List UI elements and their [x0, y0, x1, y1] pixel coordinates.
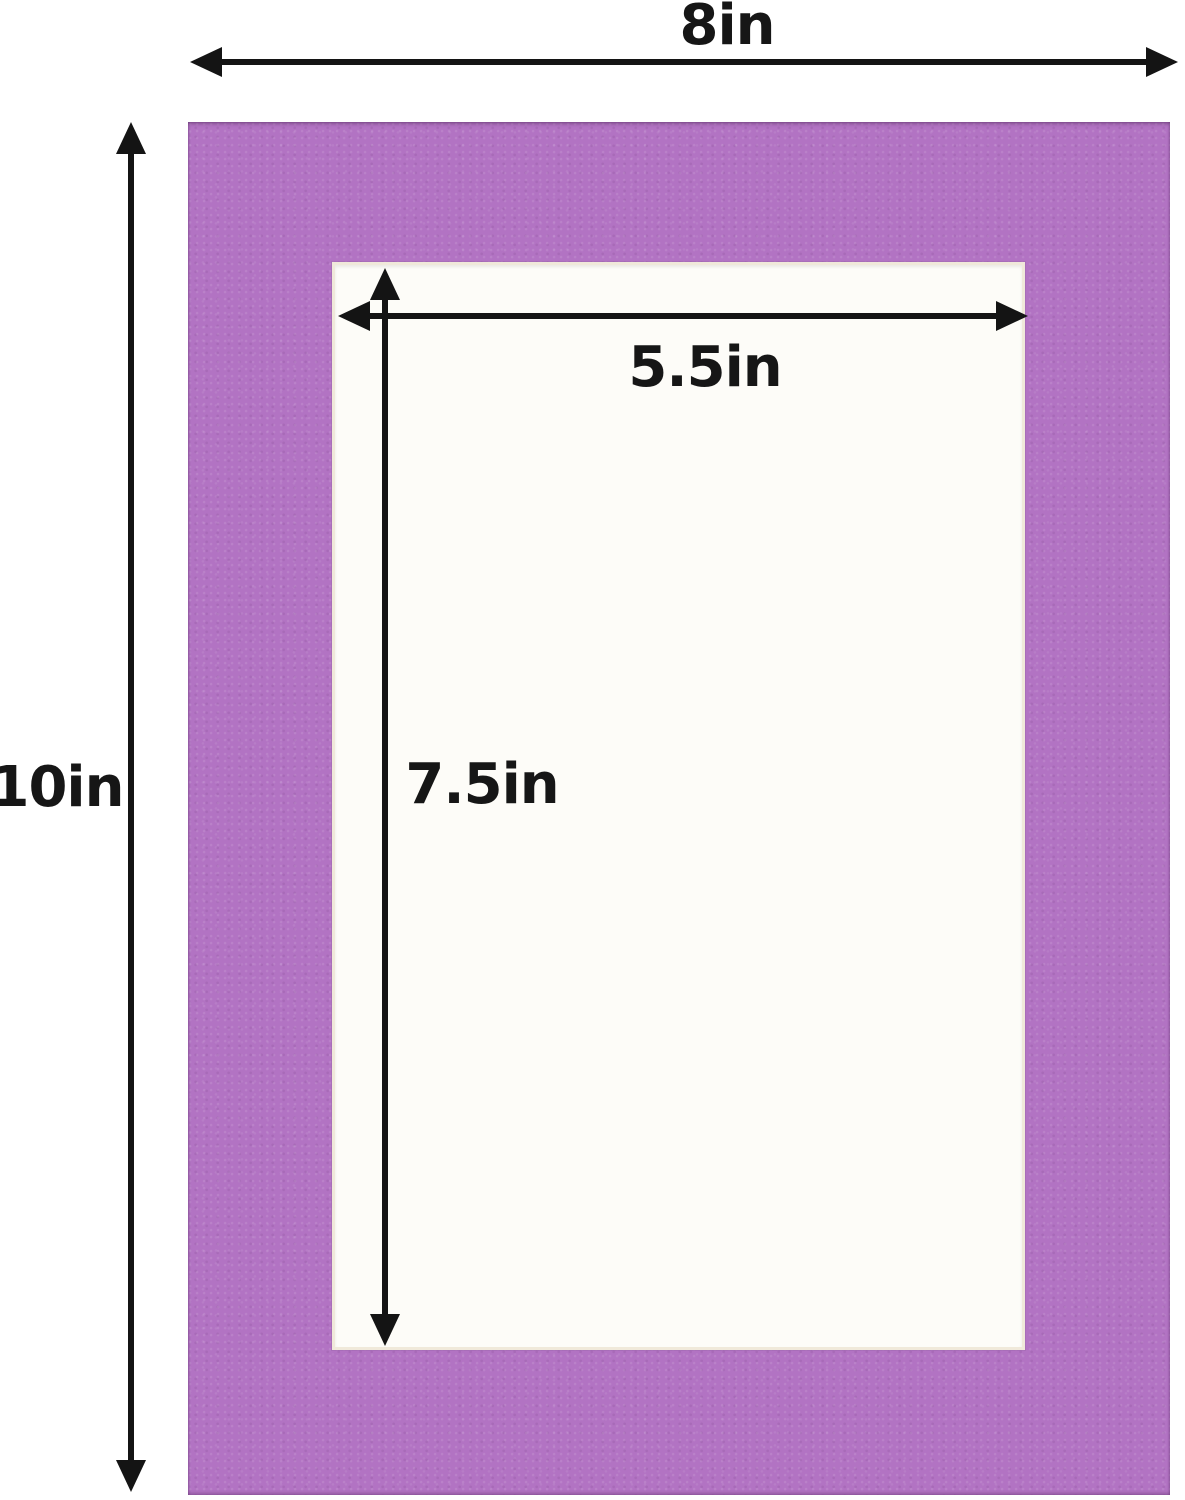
opening-width-arrow [338, 301, 1028, 331]
opening-height-arrow [370, 268, 400, 1346]
arrow-shaft [214, 59, 1154, 65]
arrow-shaft [128, 146, 134, 1468]
arrowhead-down-icon [116, 1460, 146, 1492]
diagram-canvas: 8in 10in 5.5in 7.5in [0, 0, 1185, 1500]
outer-height-label: 10in [0, 760, 124, 816]
arrow-shaft [382, 292, 388, 1322]
arrow-shaft [362, 313, 1004, 319]
opening-width-label: 5.5in [628, 340, 781, 396]
outer-width-label: 8in [679, 0, 774, 54]
arrowhead-right-icon [996, 301, 1028, 331]
opening-height-label: 7.5in [405, 757, 558, 813]
arrowhead-right-icon [1146, 47, 1178, 77]
arrowhead-down-icon [370, 1314, 400, 1346]
